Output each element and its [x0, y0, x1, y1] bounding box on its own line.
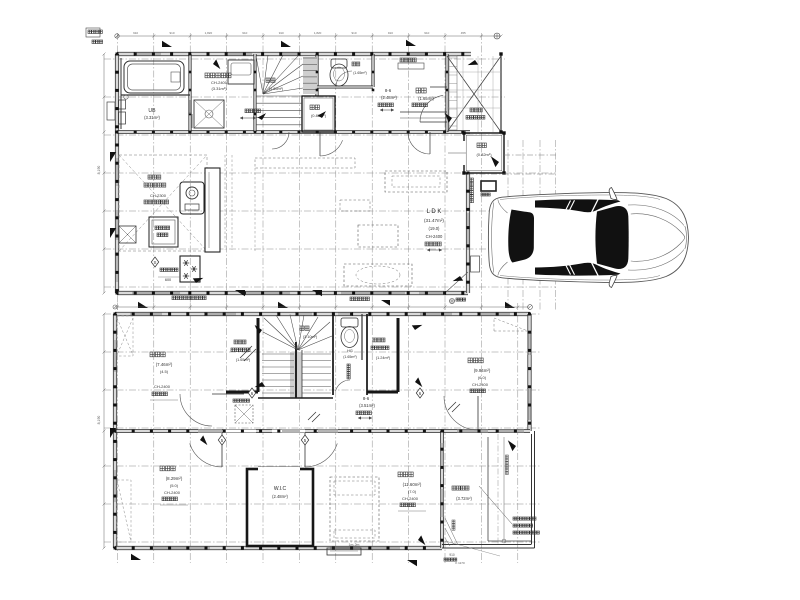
svg-text:HG: HG [347, 349, 353, 353]
svg-text:1m-2m: 1m-2m [349, 543, 360, 547]
svg-text:CH-2400: CH-2400 [402, 496, 419, 501]
svg-text:910: 910 [351, 31, 356, 35]
svg-text:(5.0): (5.0) [170, 483, 179, 488]
svg-text:CH-2400: CH-2400 [154, 384, 171, 389]
svg-text:8,190: 8,190 [97, 166, 101, 175]
svg-text:8,190: 8,190 [97, 416, 101, 425]
svg-text:CH-2400: CH-2400 [164, 490, 181, 495]
svg-text:S: S [154, 260, 157, 265]
svg-text:910: 910 [279, 31, 284, 35]
svg-text:(3.31m²): (3.31m²) [211, 86, 227, 91]
svg-text:910: 910 [424, 31, 429, 35]
svg-text:(3.72m²): (3.72m²) [456, 496, 472, 501]
svg-text:(7.0): (7.0) [408, 489, 417, 494]
svg-text:(3.10m²): (3.10m²) [303, 335, 318, 339]
svg-text:(1.65m²): (1.65m²) [269, 87, 284, 91]
svg-text:L D K: L D K [427, 209, 442, 215]
svg-text:(0.82m²): (0.82m²) [476, 152, 492, 157]
svg-text:CH-2400: CH-2400 [472, 382, 489, 387]
svg-text:(3.31m²): (3.31m²) [144, 115, 160, 120]
svg-text:(8.29m²): (8.29m²) [166, 476, 183, 481]
svg-text:(9.94m²): (9.94m²) [474, 368, 491, 373]
svg-text:600: 600 [165, 278, 171, 282]
svg-text:8-6: 8-6 [385, 88, 392, 93]
svg-text:UB: UB [148, 108, 156, 114]
svg-text:1,820: 1,820 [314, 31, 322, 35]
svg-text:910: 910 [133, 31, 138, 35]
svg-text:(3.51m²): (3.51m²) [359, 403, 375, 408]
svg-text:910: 910 [449, 553, 455, 557]
svg-text:(19.0): (19.0) [429, 226, 441, 231]
svg-text:(1.65m²): (1.65m²) [353, 71, 367, 75]
svg-text:(1.65m²): (1.65m²) [418, 96, 434, 101]
svg-text:910: 910 [169, 31, 174, 35]
svg-text:CH-2400: CH-2400 [211, 80, 228, 85]
svg-text:(1.65m²): (1.65m²) [343, 355, 357, 359]
svg-text:(31.47m²): (31.47m²) [424, 218, 444, 223]
svg-text:(2.48m²): (2.48m²) [381, 95, 397, 100]
svg-text:(1.65m²): (1.65m²) [236, 358, 251, 362]
svg-text:(6.0): (6.0) [478, 375, 487, 380]
svg-text:K 1170: K 1170 [455, 561, 465, 565]
svg-text:910: 910 [388, 31, 393, 35]
svg-text:W.I.C: W.I.C [274, 486, 287, 492]
svg-text:(4.5): (4.5) [160, 369, 169, 374]
svg-text:1,820: 1,820 [205, 31, 213, 35]
svg-text:CH-2400: CH-2400 [426, 234, 443, 239]
svg-text:455: 455 [461, 31, 466, 35]
svg-text:(1.24m²): (1.24m²) [376, 356, 391, 360]
svg-text:910: 910 [242, 31, 247, 35]
svg-text:(11.60m²): (11.60m²) [403, 482, 422, 487]
svg-text:(2.48m²): (2.48m²) [272, 494, 288, 499]
svg-text:(7.46m²): (7.46m²) [156, 362, 173, 367]
svg-text:8-6: 8-6 [363, 396, 370, 401]
svg-text:CH-2300: CH-2300 [150, 193, 167, 198]
